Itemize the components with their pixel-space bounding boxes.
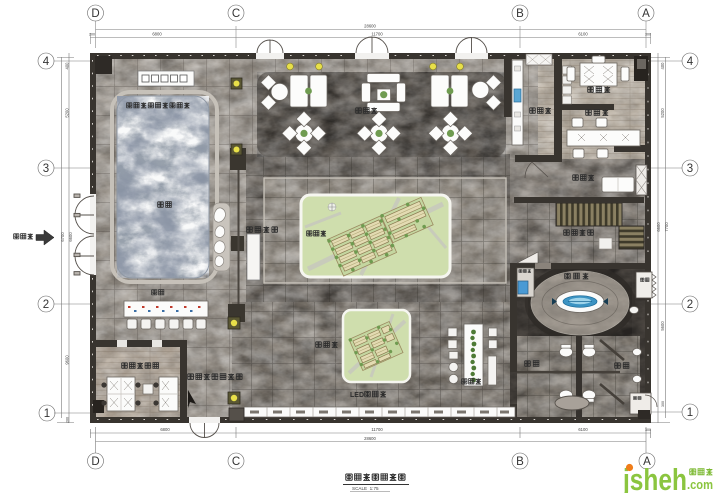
svg-text:300: 300	[661, 401, 665, 407]
svg-text:SCALE 1:75: SCALE 1:75	[352, 486, 379, 491]
svg-text:LED: LED	[350, 392, 364, 399]
svg-text:6100: 6100	[578, 32, 588, 37]
svg-text:6100: 6100	[578, 427, 588, 432]
svg-text:6700: 6700	[60, 232, 65, 242]
svg-text:300: 300	[645, 33, 651, 37]
svg-text:C: C	[232, 8, 240, 20]
svg-text:6600: 6600	[656, 222, 661, 232]
svg-text:6800: 6800	[160, 427, 170, 432]
svg-text:A: A	[642, 8, 650, 20]
svg-text:11700: 11700	[371, 427, 383, 432]
svg-text:1: 1	[687, 407, 693, 419]
svg-text:9600: 9600	[65, 355, 70, 365]
svg-text:5200: 5200	[65, 108, 70, 118]
svg-text:7700: 7700	[664, 222, 669, 232]
svg-text:B: B	[516, 456, 524, 468]
svg-text:D: D	[91, 8, 99, 20]
svg-text:5600: 5600	[660, 321, 665, 331]
svg-text:3: 3	[687, 163, 693, 175]
svg-text:6800: 6800	[152, 32, 162, 37]
svg-text:2: 2	[687, 299, 693, 311]
svg-text:300: 300	[645, 428, 651, 432]
svg-text:6600: 6600	[68, 232, 73, 242]
svg-text:200: 200	[66, 417, 70, 423]
svg-text:5200: 5200	[660, 108, 665, 118]
svg-text:400: 400	[65, 62, 70, 70]
svg-text:D: D	[91, 456, 99, 468]
svg-text:2: 2	[43, 299, 49, 311]
svg-text:B: B	[516, 8, 524, 20]
svg-text:4: 4	[43, 56, 50, 68]
svg-text:.com: .com	[687, 477, 713, 492]
svg-text:4: 4	[687, 56, 694, 68]
svg-text:11700: 11700	[371, 32, 383, 37]
svg-text:28600: 28600	[364, 436, 376, 441]
svg-text:3: 3	[43, 163, 49, 175]
svg-text:200: 200	[89, 33, 95, 37]
svg-text:28600: 28600	[364, 24, 376, 29]
svg-text:1: 1	[44, 408, 50, 420]
svg-text:400: 400	[660, 62, 665, 70]
svg-text:C: C	[232, 456, 240, 468]
